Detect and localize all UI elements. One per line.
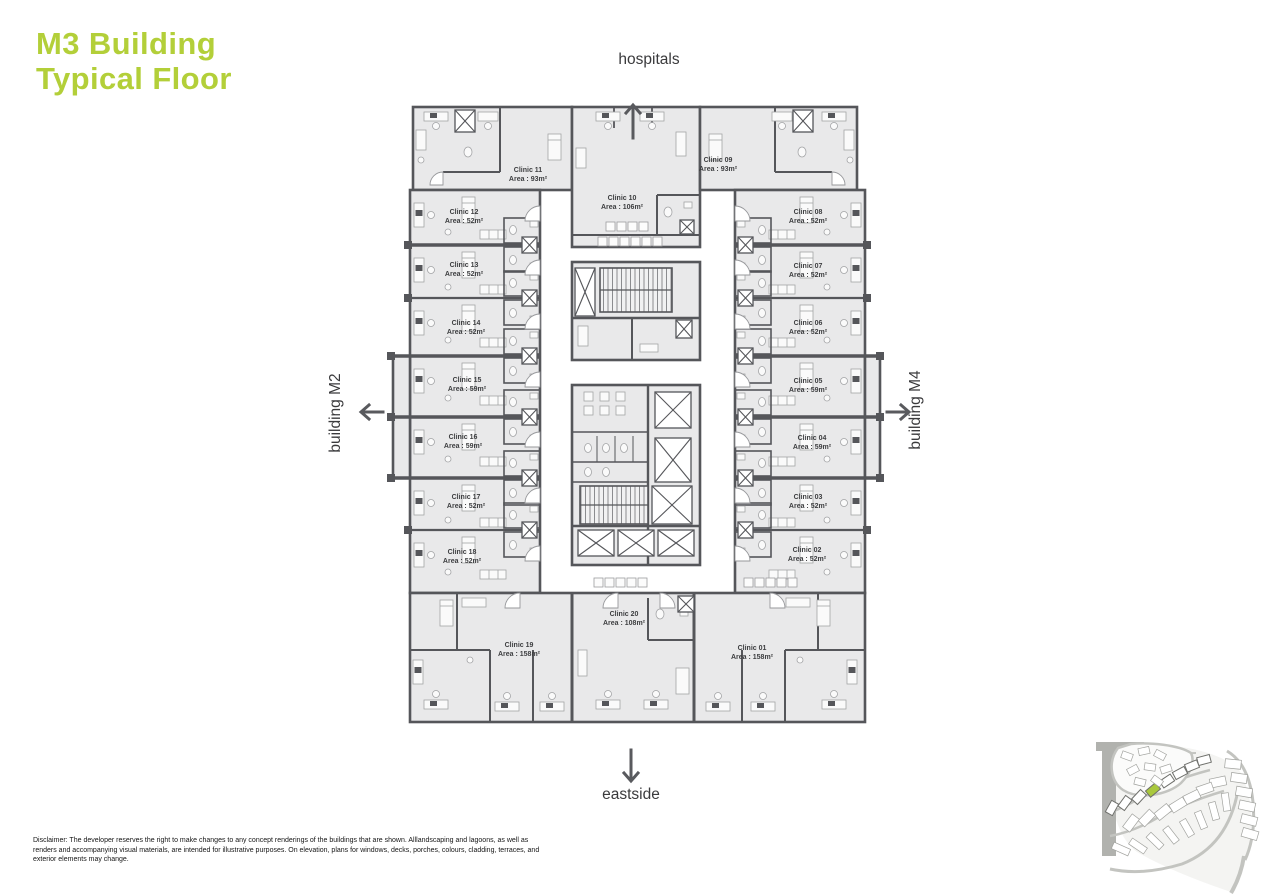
svg-text:Area : 59m²: Area : 59m² xyxy=(448,386,487,393)
svg-text:Area : 59m²: Area : 59m² xyxy=(444,443,483,450)
svg-text:Clinic 06: Clinic 06 xyxy=(794,320,823,327)
disclaimer: Disclaimer: The developer reserves the r… xyxy=(33,836,539,865)
svg-text:Clinic 09: Clinic 09 xyxy=(704,157,733,164)
floor-plan: Clinic 11Area : 93m² Clinic 10Area : 106… xyxy=(0,0,1265,894)
svg-text:Area : 93m²: Area : 93m² xyxy=(509,176,548,183)
svg-text:Clinic 14: Clinic 14 xyxy=(452,320,481,327)
brochure-page: M3 Building Typical Floor xyxy=(0,0,1265,894)
direction-building-m4: building M4 xyxy=(887,370,924,450)
svg-text:Clinic 19: Clinic 19 xyxy=(505,642,534,649)
svg-text:Area : 108m²: Area : 108m² xyxy=(603,620,646,627)
disclaimer-line-2: renders and accompanying visual material… xyxy=(33,846,539,856)
svg-text:Area : 59m²: Area : 59m² xyxy=(793,444,832,451)
direction-label-bottom: eastside xyxy=(602,786,660,803)
svg-text:Area : 52m²: Area : 52m² xyxy=(447,503,486,510)
arrow-left-icon xyxy=(361,405,383,419)
svg-text:Clinic 13: Clinic 13 xyxy=(450,262,479,269)
svg-text:Clinic 10: Clinic 10 xyxy=(608,195,637,202)
svg-text:Area : 52m²: Area : 52m² xyxy=(445,218,484,225)
svg-text:Clinic 02: Clinic 02 xyxy=(793,547,822,554)
disclaimer-line-3: exterior elements may change. xyxy=(33,855,539,865)
disclaimer-line-1: Disclaimer: The developer reserves the r… xyxy=(33,836,539,846)
svg-text:Area : 52m²: Area : 52m² xyxy=(789,218,828,225)
svg-text:Area : 52m²: Area : 52m² xyxy=(447,329,486,336)
svg-text:Clinic 20: Clinic 20 xyxy=(610,611,639,618)
direction-label-top: hospitals xyxy=(618,51,679,68)
direction-label-left: building M2 xyxy=(327,373,344,452)
svg-text:Area : 52m²: Area : 52m² xyxy=(789,329,828,336)
svg-text:Clinic 01: Clinic 01 xyxy=(738,645,767,652)
svg-text:Clinic 07: Clinic 07 xyxy=(794,263,823,270)
svg-text:Clinic 15: Clinic 15 xyxy=(453,377,482,384)
svg-text:Area : 59m²: Area : 59m² xyxy=(789,387,828,394)
arrow-right-icon xyxy=(887,405,909,419)
svg-text:Area : 52m²: Area : 52m² xyxy=(445,271,484,278)
svg-text:Area : 52m²: Area : 52m² xyxy=(789,272,828,279)
direction-label-right: building M4 xyxy=(907,370,924,450)
svg-text:Clinic 04: Clinic 04 xyxy=(798,435,827,442)
svg-text:Clinic 12: Clinic 12 xyxy=(450,209,479,216)
svg-text:Clinic 05: Clinic 05 xyxy=(794,378,823,385)
direction-eastside: eastside xyxy=(602,750,660,803)
svg-text:Area : 52m²: Area : 52m² xyxy=(788,556,827,563)
arrow-down-icon xyxy=(624,750,638,781)
svg-text:Area : 52m²: Area : 52m² xyxy=(789,503,828,510)
svg-text:Area : 158m²: Area : 158m² xyxy=(731,654,774,661)
svg-text:Area : 106m²: Area : 106m² xyxy=(601,204,644,211)
svg-text:Clinic 08: Clinic 08 xyxy=(794,209,823,216)
svg-text:Clinic 16: Clinic 16 xyxy=(449,434,478,441)
svg-text:Clinic 03: Clinic 03 xyxy=(794,494,823,501)
svg-text:Clinic 17: Clinic 17 xyxy=(452,494,481,501)
svg-text:Area : 158m²: Area : 158m² xyxy=(498,651,541,658)
svg-text:Area : 93m²: Area : 93m² xyxy=(699,166,738,173)
svg-text:Area : 52m²: Area : 52m² xyxy=(443,558,482,565)
svg-text:Clinic 18: Clinic 18 xyxy=(448,549,477,556)
site-minimap xyxy=(1096,742,1259,893)
svg-text:Clinic 11: Clinic 11 xyxy=(514,167,543,174)
direction-building-m2: building M2 xyxy=(327,373,383,452)
